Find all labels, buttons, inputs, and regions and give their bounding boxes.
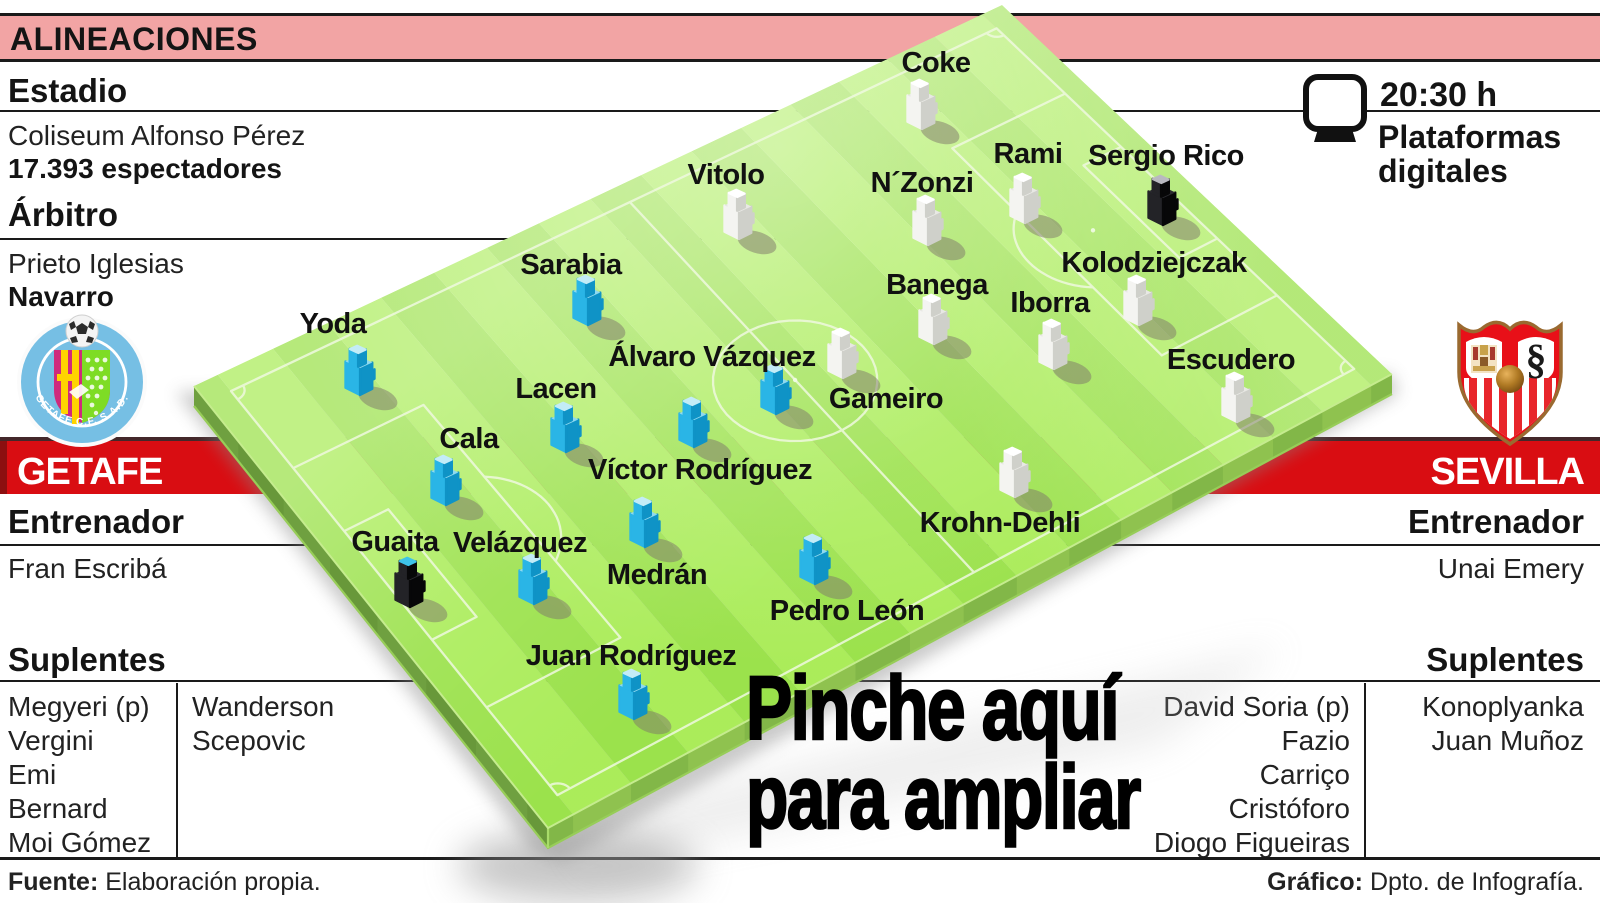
svg-text:Juan Rodríguez: Juan Rodríguez xyxy=(526,640,737,672)
svg-text:Iborra: Iborra xyxy=(1010,287,1091,319)
svg-text:Banega: Banega xyxy=(886,269,989,301)
svg-text:Escudero: Escudero xyxy=(1167,344,1295,376)
svg-text:Kolodziejczak: Kolodziejczak xyxy=(1061,247,1248,279)
svg-text:Pedro León: Pedro León xyxy=(770,595,925,627)
svg-text:Lacen: Lacen xyxy=(515,373,596,405)
svg-text:Krohn-Dehli: Krohn-Dehli xyxy=(920,507,1080,539)
svg-text:Coke: Coke xyxy=(902,47,971,79)
svg-text:Guaita: Guaita xyxy=(351,526,440,558)
svg-text:Álvaro Vázquez: Álvaro Vázquez xyxy=(608,339,815,373)
svg-text:§: § xyxy=(1526,337,1547,383)
svg-text:Vitolo: Vitolo xyxy=(687,159,764,191)
svg-text:Víctor Rodríguez: Víctor Rodríguez xyxy=(588,454,812,486)
svg-text:Medrán: Medrán xyxy=(607,559,707,591)
svg-text:Yoda: Yoda xyxy=(300,308,368,340)
svg-text:N´Zonzi: N´Zonzi xyxy=(871,167,974,199)
svg-text:Rami: Rami xyxy=(994,138,1063,170)
svg-text:Gameiro: Gameiro xyxy=(829,383,943,415)
svg-text:Sergio Rico: Sergio Rico xyxy=(1088,140,1244,172)
svg-text:Sarabia: Sarabia xyxy=(520,249,623,281)
svg-text:Velázquez: Velázquez xyxy=(453,527,587,559)
svg-text:Cala: Cala xyxy=(439,423,500,455)
